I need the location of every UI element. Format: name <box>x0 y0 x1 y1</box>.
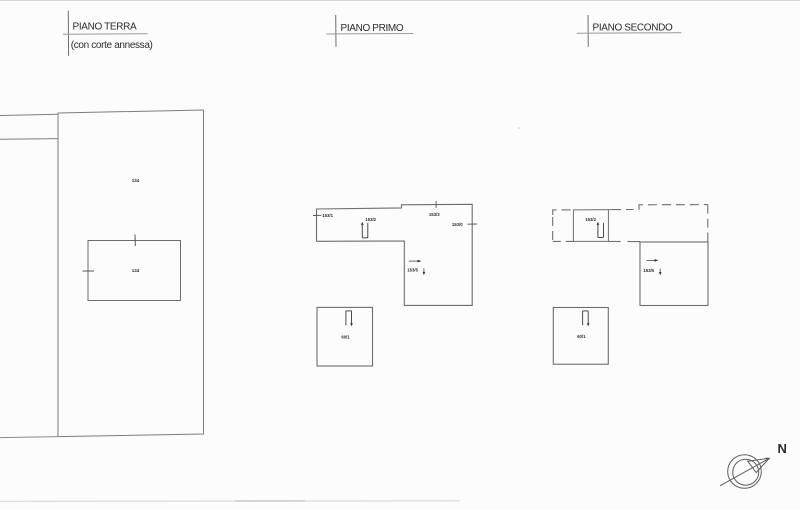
svg-text:N: N <box>778 441 787 456</box>
svg-text:153/0: 153/0 <box>452 222 463 227</box>
svg-text:153/1: 153/1 <box>322 213 333 218</box>
svg-text:PIANO TERRA: PIANO TERRA <box>73 22 137 33</box>
svg-text:153/3: 153/3 <box>429 212 440 217</box>
svg-text:PIANO SECONDO: PIANO SECONDO <box>593 22 673 33</box>
svg-text:153/5: 153/5 <box>407 268 418 273</box>
svg-text:153/5: 153/5 <box>643 268 654 273</box>
svg-text:60/1: 60/1 <box>577 334 586 339</box>
svg-text:134: 134 <box>132 268 140 273</box>
svg-text:153/2: 153/2 <box>585 217 596 222</box>
svg-text:153/2: 153/2 <box>365 217 376 222</box>
svg-text:(con corte annessa): (con corte annessa) <box>71 40 153 51</box>
svg-text:134: 134 <box>132 178 140 183</box>
svg-text:60/1: 60/1 <box>341 335 350 340</box>
svg-text:PIANO PRIMO: PIANO PRIMO <box>341 23 404 34</box>
